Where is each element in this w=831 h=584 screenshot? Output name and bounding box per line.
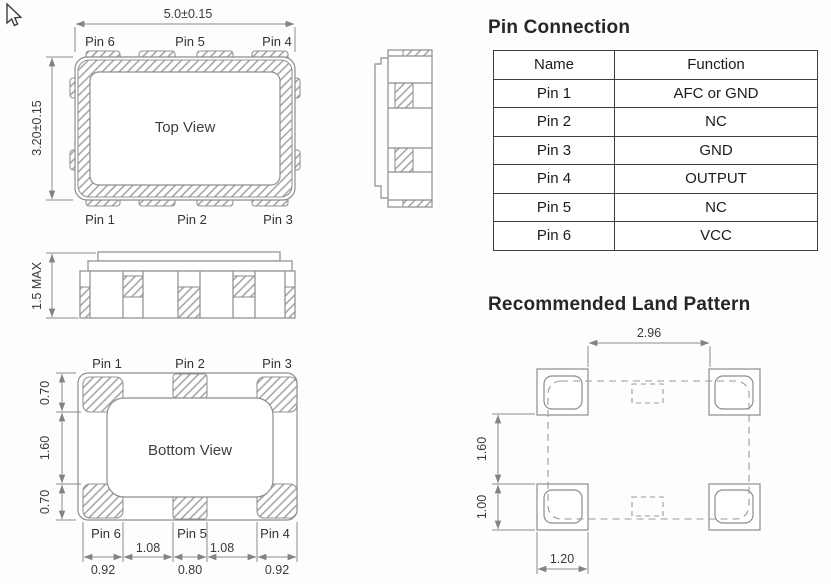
top-view-height-dim: 3.20±0.15	[30, 100, 44, 156]
pin-function-cell: NC	[615, 193, 818, 222]
land-pattern-drawing: 2.96 1.60 1.00 1.20	[475, 326, 760, 574]
pin-name-cell: Pin 2	[494, 108, 615, 137]
pin-name-cell: Pin 3	[494, 136, 615, 165]
pin-connection-table: Name Function Pin 1 AFC or GND Pin 2 NC …	[493, 50, 818, 251]
column-header-function: Function	[615, 51, 818, 80]
pin-name-cell: Pin 4	[494, 165, 615, 194]
bottom-view-dim-070-bottom: 0.70	[38, 490, 52, 514]
mouse-cursor-icon	[2, 2, 28, 32]
land-pattern-dim-100: 1.00	[475, 495, 489, 519]
pin-name-cell: Pin 5	[494, 193, 615, 222]
pin-function-cell: AFC or GND	[615, 79, 818, 108]
pin-connection-title: Pin Connection	[488, 17, 630, 39]
top-view-pin6-label: Pin 6	[85, 34, 115, 49]
bottom-view-dim-108-left: 1.08	[136, 541, 160, 555]
bottom-view-pin6-label: Pin 6	[91, 526, 121, 541]
table-row: Pin 1 AFC or GND	[494, 79, 818, 108]
top-view-pin4-label: Pin 4	[262, 34, 292, 49]
bottom-view-drawing: Bottom View Pin 1 Pin 2 Pin 3 Pin 6 Pin …	[38, 356, 297, 577]
land-pattern-dim-160: 1.60	[475, 437, 489, 461]
land-pattern-title: Recommended Land Pattern	[488, 294, 750, 316]
table-row: Pin 6 VCC	[494, 222, 818, 251]
pin-function-cell: GND	[615, 136, 818, 165]
top-view-drawing: 5.0±0.15 Top View	[30, 7, 300, 227]
top-view-width-dim: 5.0±0.15	[164, 7, 213, 21]
bottom-view-dim-070-top: 0.70	[38, 381, 52, 405]
front-view-drawing: 1.5 MAX	[30, 252, 295, 318]
table-row: Pin 4 OUTPUT	[494, 165, 818, 194]
top-view-pin5-label: Pin 5	[175, 34, 205, 49]
column-header-name: Name	[494, 51, 615, 80]
bottom-view-pin5-label: Pin 5	[177, 526, 207, 541]
top-view-title: Top View	[155, 119, 216, 136]
land-pattern-dim-120: 1.20	[550, 552, 574, 566]
pin-function-cell: NC	[615, 108, 818, 137]
bottom-view-dim-092-right: 0.92	[265, 563, 289, 577]
bottom-view-pin2-label: Pin 2	[175, 356, 205, 371]
bottom-view-pin4-label: Pin 4	[260, 526, 290, 541]
datasheet-page: 5.0±0.15 Top View	[0, 0, 831, 584]
bottom-view-dim-160: 1.60	[38, 436, 52, 460]
bottom-view-dim-080: 0.80	[178, 563, 202, 577]
bottom-view-dim-092-left: 0.92	[91, 563, 115, 577]
top-view-pin1-label: Pin 1	[85, 212, 115, 227]
pin-function-cell: OUTPUT	[615, 165, 818, 194]
bottom-view-dim-108-right: 1.08	[210, 541, 234, 555]
side-view-drawing	[375, 50, 432, 207]
bottom-view-title: Bottom View	[148, 442, 232, 459]
bottom-view-pin3-label: Pin 3	[262, 356, 292, 371]
table-header-row: Name Function	[494, 51, 818, 80]
pin-name-cell: Pin 6	[494, 222, 615, 251]
top-view-pin2-label: Pin 2	[177, 212, 207, 227]
bottom-view-pin1-label: Pin 1	[92, 356, 122, 371]
pin-name-cell: Pin 1	[494, 79, 615, 108]
table-row: Pin 2 NC	[494, 108, 818, 137]
table-row: Pin 3 GND	[494, 136, 818, 165]
pin-function-cell: VCC	[615, 222, 818, 251]
land-pattern-dim-296: 2.96	[637, 326, 661, 340]
front-view-height-dim: 1.5 MAX	[30, 261, 44, 310]
top-view-pin3-label: Pin 3	[263, 212, 293, 227]
table-row: Pin 5 NC	[494, 193, 818, 222]
